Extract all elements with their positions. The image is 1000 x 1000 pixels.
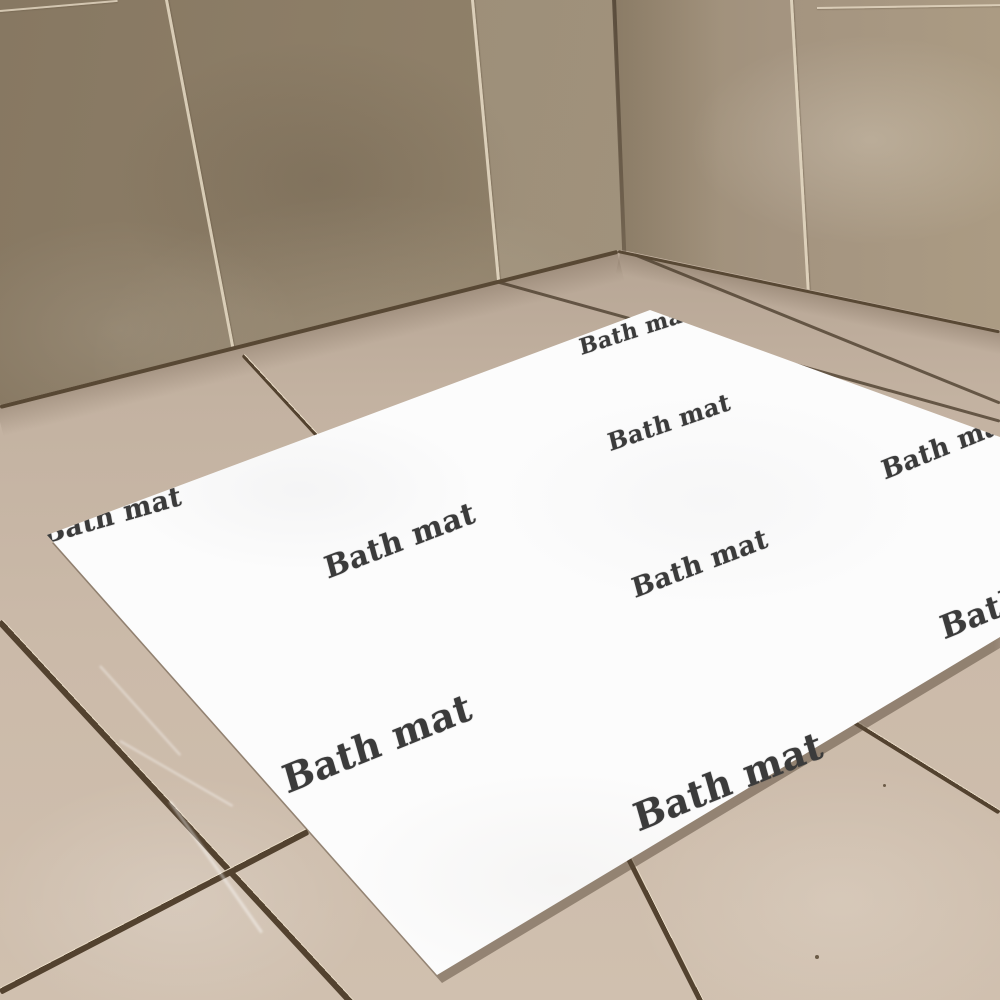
bathroom-corner-photo: Bath matBath matBath matBath matBath mat… <box>0 0 1000 1000</box>
mat-overflow-text-layer: Bath mat <box>0 0 1000 1000</box>
mat-text: Bath mat <box>628 722 827 841</box>
